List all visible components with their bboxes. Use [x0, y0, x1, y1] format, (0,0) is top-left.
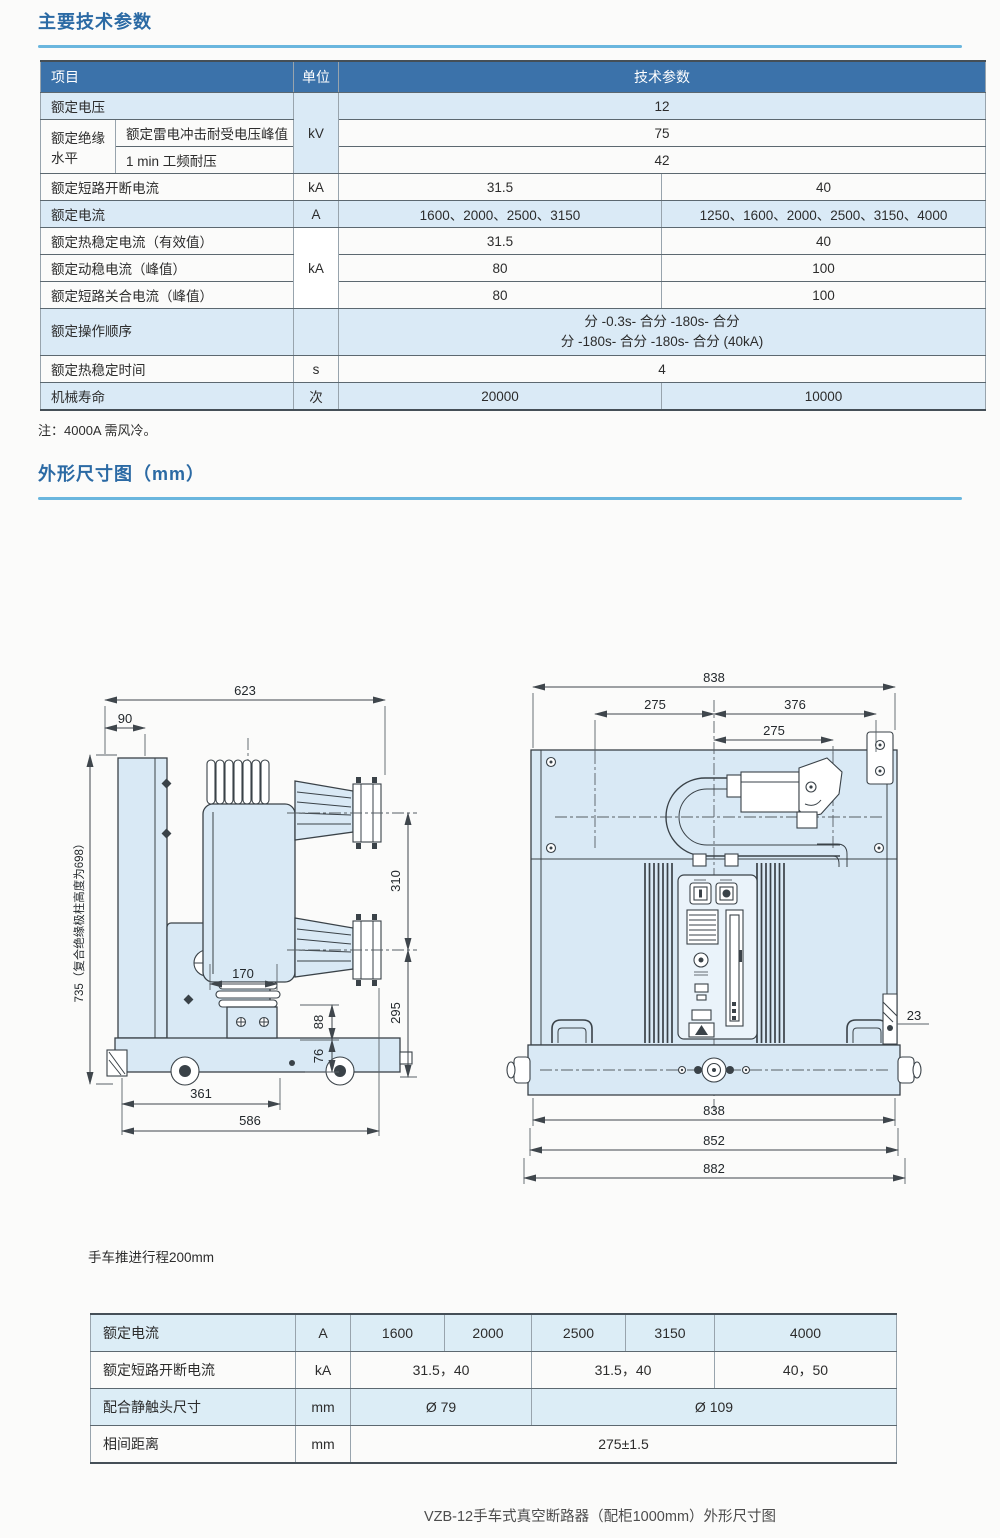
sequence-line-2: 分 -180s- 合分 -180s- 合分 (40kA): [345, 332, 979, 352]
dim-23: 23: [907, 1008, 921, 1023]
dim-275-inner: 275: [763, 723, 785, 738]
cell-value-2: 100: [662, 282, 986, 309]
dim-top-838: 838: [703, 670, 725, 685]
vent-slots-right: [757, 863, 784, 1043]
row-power-frequency: 1 min 工频耐压 42: [41, 147, 986, 174]
cell-insulation-group: 额定绝缘水平: [41, 120, 116, 174]
cell-unit: kA: [294, 174, 339, 201]
row-lightning-impulse: 额定绝缘水平 额定雷电冲击耐受电压峰值 75: [41, 120, 986, 147]
row-rated-current: 额定电流 A 1600 2000 2500 3150 4000: [91, 1314, 897, 1352]
dim-852: 852: [703, 1133, 725, 1148]
cell-unit: A: [294, 201, 339, 228]
cell-label: 额定动稳电流（峰值）: [41, 255, 294, 282]
pole-bellows: [207, 760, 269, 804]
pole-lower-fins: [216, 982, 280, 1007]
dim-376: 376: [784, 697, 806, 712]
cell-unit: kA: [296, 1352, 351, 1389]
cell-c2: 2000: [445, 1314, 532, 1352]
cell-value-1: 80: [339, 282, 662, 309]
cell-value-1: 20000: [339, 383, 662, 411]
dim-88: 88: [311, 1015, 326, 1029]
pole-cylinder: [203, 804, 295, 982]
cell-label: 额定电流: [91, 1314, 296, 1352]
row-thermal-current: 额定热稳定电流（有效值） kA 31.5 40: [41, 228, 986, 255]
chassis: [115, 1038, 400, 1072]
counter: [695, 984, 708, 992]
dim-623: 623: [234, 683, 256, 698]
interlock-plate: [867, 732, 893, 784]
cell-v2: 31.5，40: [532, 1352, 715, 1389]
header-unit: 单位: [294, 61, 339, 93]
row-phase-distance: 相间距离 mm 275±1.5: [91, 1426, 897, 1464]
row-dynamic-current: 额定动稳电流（峰值） 80 100: [41, 255, 986, 282]
cell-v3: 40，50: [715, 1352, 897, 1389]
matching-table: 额定电流 A 1600 2000 2500 3150 4000 额定短路开断电流…: [90, 1313, 897, 1464]
cell-unit-ka: kA: [294, 228, 339, 309]
cell-label: 额定短路开断电流: [41, 174, 294, 201]
cell-unit: s: [294, 356, 339, 383]
front-view-drawing: 838 275 376 275 23 838 852 882: [495, 672, 970, 1187]
cell-value: 42: [339, 147, 986, 174]
dim-275-left: 275: [644, 697, 666, 712]
dim-76: 76: [311, 1049, 326, 1063]
cell-label: 额定电流: [41, 201, 294, 228]
header-value: 技术参数: [339, 61, 986, 93]
row-mechanical-life: 机械寿命 次 20000 10000: [41, 383, 986, 411]
main-parameter-table: 项目 单位 技术参数 额定电压 kV 12 额定绝缘水平 额定雷电冲击耐受电压峰…: [40, 60, 986, 411]
row-static-contact: 配合静触头尺寸 mm Ø 79 Ø 109: [91, 1389, 897, 1426]
chassis-bar: [507, 1045, 921, 1095]
row-thermal-time: 额定热稳定时间 s 4: [41, 356, 986, 383]
cell-value-2: 100: [662, 255, 986, 282]
cell-unit: A: [296, 1314, 351, 1352]
cell-c1: 1600: [351, 1314, 445, 1352]
cell-value-1: 80: [339, 255, 662, 282]
section1-rule: [38, 45, 962, 48]
cell-value: 12: [339, 93, 986, 120]
cell-v2: Ø 109: [532, 1389, 897, 1426]
section2-rule: [38, 497, 962, 500]
cell-label: 额定短路关合电流（峰值）: [41, 282, 294, 309]
breaker-side-body: [107, 738, 417, 1085]
dim-170: 170: [232, 966, 254, 981]
dim-361: 361: [190, 1086, 212, 1101]
cell-unit: 次: [294, 383, 339, 411]
cell-v1: 31.5，40: [351, 1352, 532, 1389]
cell-label: 额定热稳定电流（有效值）: [41, 228, 294, 255]
row-operating-sequence: 额定操作顺序 分 -0.3s- 合分 -180s- 合分 分 -180s- 合分…: [41, 309, 986, 356]
cell-v1: 275±1.5: [351, 1426, 897, 1464]
section1-title: 主要技术参数: [38, 8, 152, 34]
cell-label: 额定热稳定时间: [41, 356, 294, 383]
cell-label: 额定电压: [41, 93, 294, 120]
cell-label: 相间距离: [91, 1426, 296, 1464]
row-making-current: 额定短路关合电流（峰值） 80 100: [41, 282, 986, 309]
cell-sequence: 分 -0.3s- 合分 -180s- 合分 分 -180s- 合分 -180s-…: [339, 309, 986, 356]
cell-value-1: 31.5: [339, 228, 662, 255]
cell-value-2: 1250、1600、2000、2500、3150、4000: [662, 201, 986, 228]
header-item: 项目: [41, 61, 294, 93]
vent-slots-left: [645, 863, 672, 1043]
control-panel: [678, 875, 757, 1039]
side-bracket: [883, 994, 897, 1044]
cell-value-1: 31.5: [339, 174, 662, 201]
cell-c5: 4000: [715, 1314, 897, 1352]
table-header-row: 项目 单位 技术参数: [41, 61, 986, 93]
cell-label: 额定短路开断电流: [91, 1352, 296, 1389]
figure-caption: VZB-12手车式真空断路器（配柜1000mm）外形尺寸图: [200, 1505, 1000, 1526]
breaker-front-body: [507, 700, 921, 1112]
dim-882: 882: [703, 1161, 725, 1176]
dim-310: 310: [388, 870, 403, 892]
frame-plate: [118, 758, 167, 1038]
section2-title: 外形尺寸图（mm）: [38, 460, 205, 486]
sequence-line-1: 分 -0.3s- 合分 -180s- 合分: [345, 312, 979, 332]
table-footnote: 注：4000A 需风冷。: [38, 420, 157, 439]
cell-value: 4: [339, 356, 986, 383]
dim-586: 586: [239, 1113, 261, 1128]
cell-label: 额定操作顺序: [41, 309, 294, 356]
cell-value-2: 10000: [662, 383, 986, 411]
cell-c3: 2500: [532, 1314, 626, 1352]
row-rated-current: 额定电流 A 1600、2000、2500、3150 1250、1600、200…: [41, 201, 986, 228]
cell-value-2: 40: [662, 174, 986, 201]
cell-unit-kv: kV: [294, 93, 339, 174]
row-breaking-current: 额定短路开断电流 kA 31.5 40: [41, 174, 986, 201]
dim-bottom-838: 838: [703, 1103, 725, 1118]
cell-v1: Ø 79: [351, 1389, 532, 1426]
cell-unit: mm: [296, 1389, 351, 1426]
dim-90: 90: [118, 711, 132, 726]
travel-note: 手车推进行程200mm: [88, 1246, 214, 1266]
cell-label: 额定雷电冲击耐受电压峰值: [116, 120, 294, 147]
cell-unit-empty: [294, 309, 339, 356]
cell-value-2: 40: [662, 228, 986, 255]
dim-295: 295: [388, 1002, 403, 1024]
cell-value-1: 1600、2000、2500、3150: [339, 201, 662, 228]
cell-c4: 3150: [626, 1314, 715, 1352]
row-rated-voltage: 额定电压 kV 12: [41, 93, 986, 120]
side-view-drawing: 623 90 735（复合绝缘极柱高度为698） 310 295 170 88 …: [55, 680, 455, 1150]
cell-label: 配合静触头尺寸: [91, 1389, 296, 1426]
pole-foot-plate: [227, 1007, 277, 1038]
dim-735: 735（复合绝缘极柱高度为698）: [72, 838, 86, 1003]
row-breaking-current: 额定短路开断电流 kA 31.5，40 31.5，40 40，50: [91, 1352, 897, 1389]
cell-label: 机械寿命: [41, 383, 294, 411]
cell-value: 75: [339, 120, 986, 147]
cell-label: 1 min 工频耐压: [116, 147, 294, 174]
cell-unit: mm: [296, 1426, 351, 1464]
